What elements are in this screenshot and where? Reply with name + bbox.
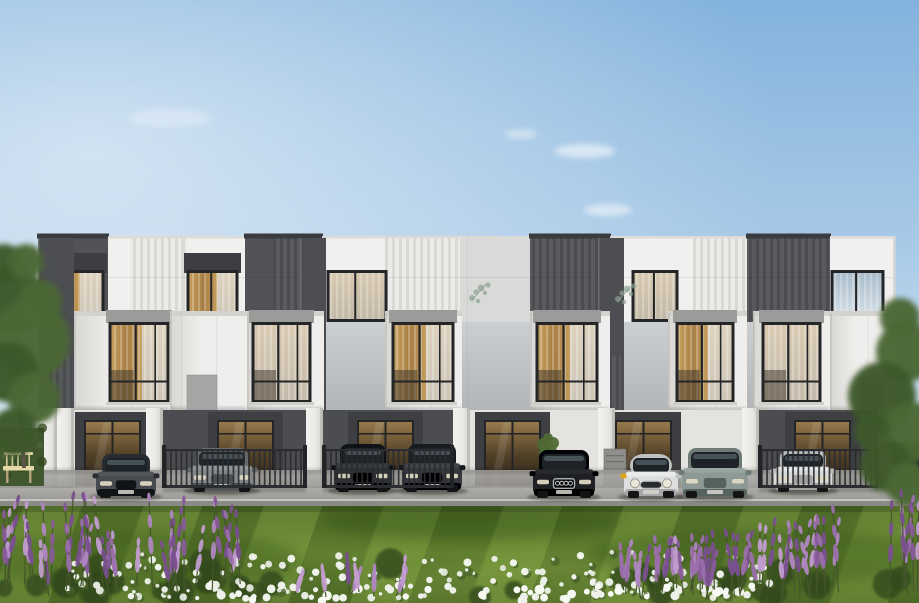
white-flower [528,590,534,596]
white-flower [535,569,541,575]
white-flower [722,590,728,596]
car-mirror [593,471,599,476]
white-flower [179,593,187,601]
white-flower [608,591,614,597]
window-cap [759,310,824,323]
fence-bar [839,449,841,488]
fence-bar [855,449,857,488]
white-flower [287,555,295,563]
white-flower [532,593,539,600]
transom [395,381,452,383]
flower-foliage [25,575,47,597]
hood-highlight [626,472,676,477]
white-flower [584,572,588,576]
white-flower [140,552,144,556]
white-flower [364,584,370,590]
white-flower [507,572,513,578]
white-flower [713,583,718,588]
mullion [297,325,299,400]
door-transom [219,433,272,435]
white-flower [521,585,528,592]
transom [679,381,732,383]
gray-inset [187,375,217,410]
fence-bar [279,449,281,488]
facade-panel-rib_white [693,236,747,322]
interior-shadow [255,370,277,400]
fence-bar [248,449,250,488]
fence-bar [191,449,193,488]
box-edge [530,313,532,410]
white-flower [540,594,548,602]
white-flower [148,556,156,564]
fence-bar [175,449,177,488]
white-flower [263,594,271,602]
utility-vent [606,455,624,456]
box-edge [830,313,832,410]
fence-bar [274,449,276,488]
white-flower [132,590,136,594]
white-flower [551,557,554,560]
white-flower [379,592,382,595]
fence-bar [419,449,421,488]
white-flower [71,570,74,573]
fence-bar [264,449,266,488]
fence-bar [227,449,229,488]
fence-post [450,445,454,488]
fence-bar [387,449,389,488]
roof-cap [244,234,274,239]
parapet-cap [130,236,187,239]
flower-leaf [464,567,473,576]
decal-leaf [476,299,480,303]
cloud [128,109,212,127]
facade-top-floor [37,234,895,323]
headlight [338,474,350,479]
wheel [580,491,591,498]
interior-shadow [679,370,700,400]
fence-bar [341,449,343,488]
fence-bar [797,449,799,488]
box-edge [74,313,76,410]
white-flower [123,585,129,591]
unit-joint [324,236,325,412]
mullion [701,325,703,400]
unit-joint [181,236,182,412]
white-flower [161,586,167,592]
scene-svg [0,0,919,603]
fence-bar [413,449,415,488]
box-edge [385,313,387,410]
bay-window [673,310,737,405]
white-flower [260,564,265,569]
flower-leaf [550,557,559,566]
hood-highlight [98,472,154,477]
flower-foliage [888,567,911,590]
white-flower [309,594,315,600]
white-flower [590,571,595,576]
white-flower [339,573,347,581]
license-plate [118,490,134,494]
fence-post [162,445,166,488]
fence-bar [823,449,825,488]
white-flower [186,589,189,592]
white-flower [322,591,332,601]
door-transom [796,433,849,435]
white-flower [562,595,571,603]
bay-window-box [385,310,462,413]
fence-bar [408,449,410,488]
fence-bar [844,449,846,488]
decal-leaf [469,295,475,301]
decal-leaf [631,283,636,288]
mullion [154,325,156,400]
fence-bar [259,449,261,488]
bay-window-box [74,310,172,413]
fence-bar [290,449,292,488]
window-sill [759,402,824,405]
box-edge [247,313,249,410]
car-mirror [390,465,396,470]
bay-window [389,310,457,405]
grille [704,478,726,488]
fence-rail [163,485,306,488]
fence-bar [834,449,836,488]
fence-segment [322,445,454,488]
white-flower [422,559,427,564]
window-sill [389,402,457,405]
interior-shadow [539,370,562,400]
white-flower [335,552,342,559]
car-mirror [679,470,685,475]
window-cap [106,310,172,323]
hedge-leaf [38,423,47,432]
white-flower [610,550,615,555]
roof-cap [37,234,109,239]
white-flower [312,568,319,575]
box-edge [170,313,172,410]
door-transom [86,433,139,435]
unit-joint [467,236,468,412]
bay-window [106,310,172,405]
white-flower [447,577,452,582]
white-flower [238,581,245,588]
white-flower [249,553,256,560]
white-flower [125,562,132,569]
white-flower [743,591,750,598]
headlight [816,476,828,481]
white-flower [605,578,613,586]
white-flower [155,584,159,588]
white-flower [500,565,506,571]
white-flower [521,568,529,576]
window-cap [533,310,601,323]
roof-cap [529,234,611,239]
white-flower [491,556,497,562]
transom [255,381,309,383]
fence-bar [849,449,851,488]
grille [116,480,136,489]
white-flower [544,587,550,593]
decal-leaf [483,291,487,295]
fence-post [758,445,762,488]
roof-cap [272,234,323,239]
mullion [807,325,809,400]
car-mirror [460,465,466,470]
white-flower [457,571,463,577]
door-transom [359,433,412,435]
white-flower [490,578,496,584]
fence-bar [186,449,188,488]
fence-post [303,445,307,488]
fence-bar [429,449,431,488]
fence-bar [181,449,183,488]
headlight [140,481,152,486]
car-mirror [621,473,627,478]
facade-panel-rib_white [385,236,460,322]
white-flower [339,594,347,602]
white-flower [589,563,592,566]
white-flower [590,580,596,586]
white-flower [559,582,564,587]
fence-bar [295,449,297,488]
fence-bar [201,449,203,488]
unit-joint [610,236,611,412]
white-flower [313,587,318,592]
bench-leg [29,470,32,483]
white-flower [131,580,135,584]
white-flower [513,586,520,593]
headlight [686,479,698,484]
white-flower [644,594,650,600]
white-flower [520,593,528,601]
fence-bar [356,449,358,488]
headlight [194,475,206,480]
wheel [537,491,548,498]
fence-bar [393,449,395,488]
windshield-glare [635,460,667,465]
transom [765,381,819,383]
facade-panel-dark [245,236,273,322]
unit-joint [753,236,754,412]
wheel [686,491,697,498]
fence-bar [212,449,214,488]
bay-window [533,310,601,405]
bench-leg [6,470,9,483]
bay-window-box [530,310,610,413]
fence-bar [803,449,805,488]
decal-leaf [629,292,633,296]
parapet-cap [830,236,895,239]
white-flower [235,590,242,597]
fence-bar [335,449,337,488]
white-flower [715,587,723,595]
wheel [628,491,639,498]
bay-window-box [753,310,830,413]
window-sill [533,402,601,405]
white-flower [748,583,755,590]
fence-bar [238,449,240,488]
decal-leaf [619,290,624,295]
tree-foliage [880,298,919,338]
parapet-cap [460,236,530,239]
white-flower [465,568,468,571]
fence-bar [330,449,332,488]
white-flower [510,559,517,566]
white-flower [309,577,313,581]
fence-bar [196,449,198,488]
hedge-leaf [37,457,47,467]
fence-bar [829,449,831,488]
car-mirror [93,473,99,478]
fence-bar [243,449,245,488]
grille [640,481,662,488]
decal-leaf [478,285,485,292]
fence-bar [771,449,773,488]
fence-bar [813,449,815,488]
fence-bar [300,449,302,488]
decal-leaf [615,296,621,302]
fence-bar [372,449,374,488]
plant-foliage [543,433,553,443]
parapet-cap [693,236,747,239]
headlight [631,479,640,488]
facade-panel-rib_white [130,236,187,322]
headlight [579,480,591,485]
fence-bar [766,449,768,488]
mullion [720,325,722,400]
white-flower [242,595,249,602]
white-flower [665,578,669,582]
license-plate [556,490,572,494]
fence-rail [163,449,306,451]
white-flower [408,584,413,589]
fence-bar [424,449,426,488]
window-cap [673,310,737,323]
fence-bar [361,449,363,488]
white-flower [352,557,356,561]
decal-leaf [622,300,626,304]
parapet-cap [322,236,385,239]
white-flower [426,577,432,583]
white-flower [440,568,447,575]
bench-slat [6,454,8,466]
parapet-cap [187,236,245,239]
curtain-folds [330,273,385,319]
wheel [100,491,111,498]
facade-panel-gray [460,236,530,322]
white-flower [247,563,252,568]
fence-bar [445,449,447,488]
fence-bar [787,449,789,488]
white-flower [368,574,372,578]
white-flower [403,593,409,599]
windshield-glare [107,460,145,465]
white-flower [93,582,100,589]
hood-highlight [684,468,746,473]
mullion [418,325,420,400]
panel-joint [38,277,895,278]
fence-bar [439,449,441,488]
white-flower [595,584,601,590]
facade-panel-white [108,236,130,322]
fence-bar [434,449,436,488]
bench-slat [28,454,30,466]
roof-cap [746,234,831,239]
white-flower [577,552,584,559]
white-flower [279,562,286,569]
fence-bar [403,449,405,488]
white-flower [332,594,339,601]
fence-bar [377,449,379,488]
cloud [555,144,615,158]
tree-foliage [854,414,890,450]
white-flower [301,592,308,599]
fence-bar [351,449,353,488]
interior-shadow [765,370,787,400]
white-flower [195,596,199,600]
car-mirror [530,471,536,476]
white-flower [145,578,151,584]
fence-bar [792,449,794,488]
fence-bar [346,449,348,488]
hood-highlight [535,469,593,474]
cloud [505,129,537,139]
fence-bar [777,449,779,488]
white-flower [424,586,431,593]
mullion [787,325,789,400]
white-flower [265,561,272,568]
tree-foliage [8,244,44,280]
interior-shadow [112,370,134,400]
fence-bar [269,449,271,488]
fence-bar [285,449,287,488]
white-flower [387,586,395,594]
window-cap [389,310,457,323]
white-flower [396,578,399,581]
window-cap [249,310,314,323]
car-mirror [154,473,160,478]
headlight [663,479,672,488]
fence-bar [398,449,400,488]
window-sill [673,402,737,405]
hedge-leaf [36,442,42,448]
fence-bar [207,449,209,488]
headlight [732,479,744,484]
fence-bar [367,449,369,488]
fence-bar [382,449,384,488]
fence-bar [222,449,224,488]
clerestory-window [327,270,388,322]
interior-shadow [395,370,418,400]
headlight [537,480,549,485]
bench-slat [17,454,19,466]
mullion [562,325,564,400]
bench-seat [3,466,34,471]
white-flower [217,591,226,600]
white-flower [337,562,345,570]
wheel [733,491,744,498]
fence-bar [253,449,255,488]
parapet-cap [108,236,130,239]
white-flower [463,558,471,566]
mullion [135,325,137,400]
parapet-cap [385,236,460,239]
mullion [354,273,356,319]
mullion [583,325,585,400]
fence-bar [808,449,810,488]
bay-window-box [668,310,747,413]
transom [539,381,596,383]
